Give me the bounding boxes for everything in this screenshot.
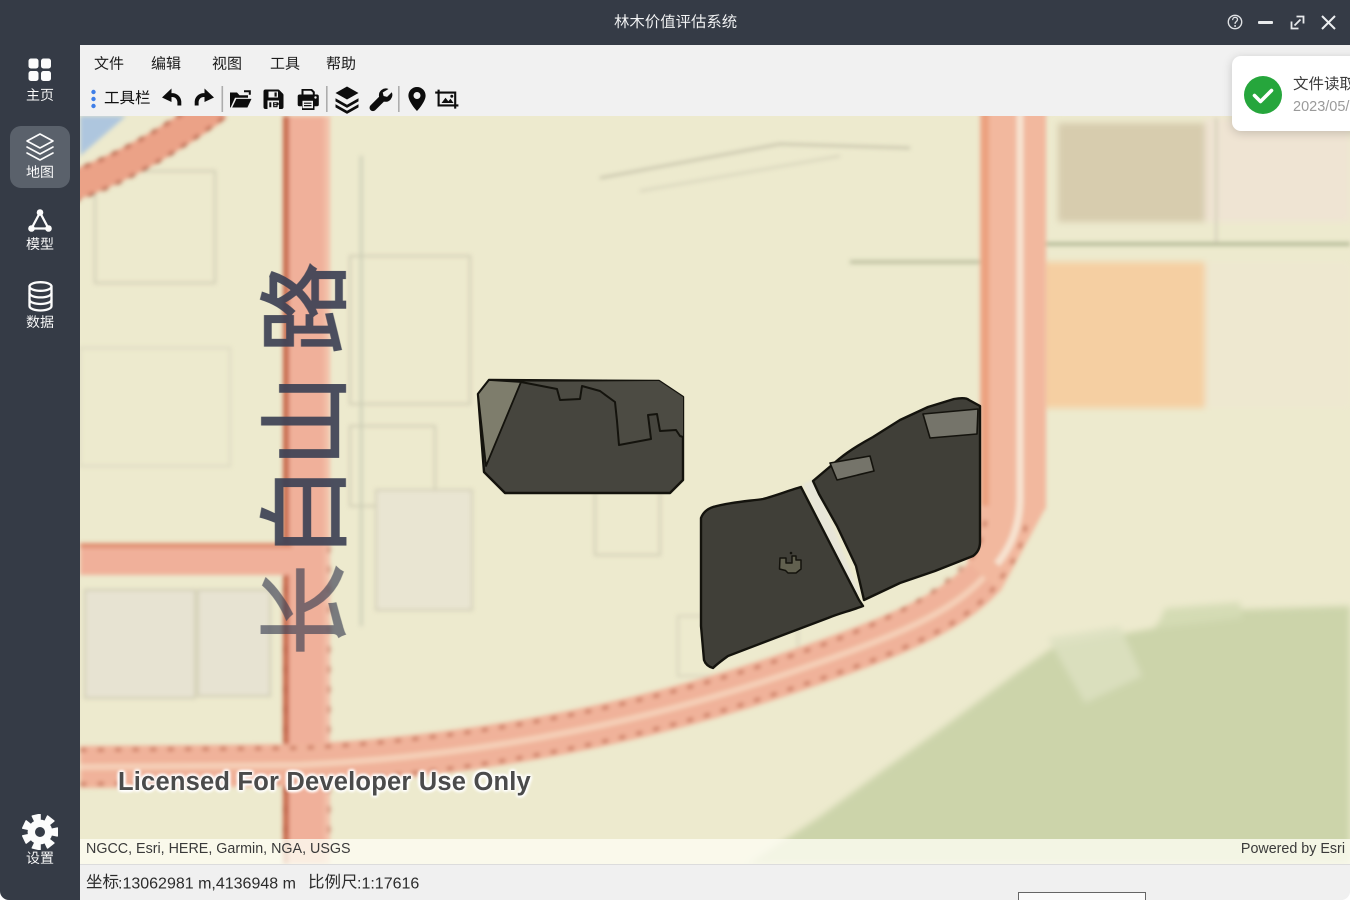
svg-text::13062981 m,4136948 m: :13062981 m,4136948 m [118, 876, 296, 893]
svg-text::1:17616: :1:17616 [357, 876, 419, 893]
